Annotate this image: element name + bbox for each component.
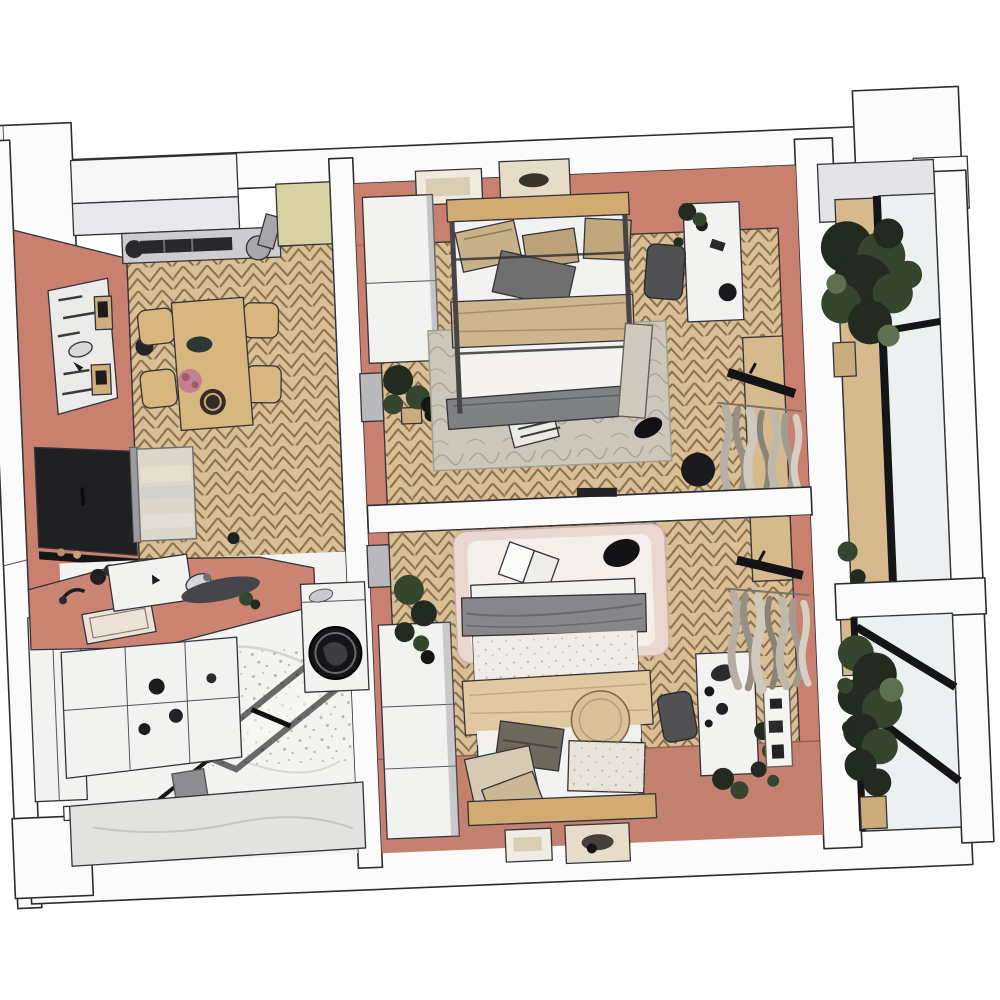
- remote-on-wall: [577, 488, 617, 497]
- tv-screen: [35, 443, 138, 559]
- plant-pot: [401, 407, 422, 424]
- washing-machine: [301, 582, 369, 693]
- floor-plan-rendering: Apartment 3D floor plan — top-down cutaw…: [0, 0, 1000, 1000]
- b1-blanket: [451, 294, 635, 348]
- b1-desk: [683, 202, 744, 322]
- balcony-mid-wall: [835, 578, 986, 620]
- b1-door: [360, 373, 384, 422]
- b2-door: [367, 545, 391, 588]
- b1-bed: [438, 192, 644, 429]
- dining-chair: [139, 368, 178, 409]
- yellow-cabinet: [276, 182, 333, 246]
- wall-pegboard: [48, 278, 119, 415]
- b1-chair: [644, 243, 686, 300]
- b2-bed: [457, 578, 657, 826]
- dining-chair: [137, 307, 176, 346]
- kitchen-island: [61, 637, 242, 778]
- bathroom: [25, 547, 376, 868]
- tree-pot: [833, 342, 856, 377]
- dining-chair: [243, 303, 278, 338]
- floor-plan-svg: [0, 0, 1000, 1000]
- bedroom-1: [351, 149, 810, 523]
- bedroom-2: [366, 515, 824, 871]
- plan-tilt-group: [0, 85, 997, 908]
- b2-wardrobe: [378, 622, 459, 839]
- plant-pot: [860, 796, 887, 829]
